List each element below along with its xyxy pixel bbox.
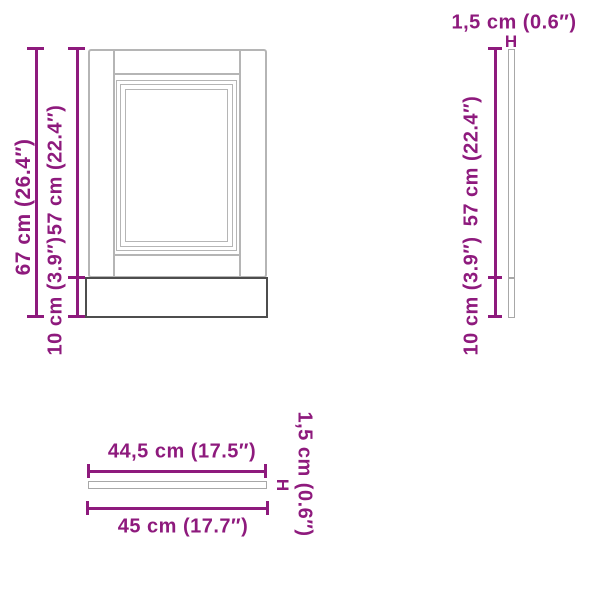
plinth-outline bbox=[85, 277, 268, 318]
thickness-marker: H bbox=[272, 479, 292, 491]
dim-tick bbox=[488, 47, 502, 50]
dim-tick bbox=[264, 464, 267, 478]
dim-tick bbox=[68, 315, 85, 318]
panel-left-stile-line bbox=[113, 51, 115, 277]
dim-label-side-plinth-height: 10 cm (3.9″) bbox=[461, 237, 484, 356]
top-panel-outline bbox=[88, 481, 267, 489]
panel-center-frame-inner bbox=[125, 89, 228, 242]
dim-line-inner-width bbox=[88, 470, 266, 473]
dim-tick bbox=[266, 501, 269, 515]
dim-line-outer-width bbox=[87, 507, 268, 510]
panel-bottom-rail-line bbox=[114, 254, 240, 256]
dim-label-door-height: 57 cm (22.4″) bbox=[45, 105, 68, 236]
dim-tick bbox=[27, 47, 44, 50]
dim-tick bbox=[27, 315, 44, 318]
dim-label-top-thickness: 1,5 cm (0.6″) bbox=[293, 411, 316, 536]
product-dimension-diagram: 67 cm (26.4″) 57 cm (22.4″) 10 cm (3.9″)… bbox=[0, 0, 600, 600]
dim-tick bbox=[86, 501, 89, 515]
dim-label-side-door-height: 57 cm (22.4″) bbox=[461, 96, 484, 227]
dim-label-total-height: 67 cm (26.4″) bbox=[12, 139, 36, 276]
panel-right-stile-line bbox=[239, 51, 241, 277]
side-panel-outline bbox=[508, 49, 515, 318]
dim-tick bbox=[488, 315, 502, 318]
dim-label-inner-width: 44,5 cm (17.5″) bbox=[108, 441, 256, 464]
side-panel-joint-line bbox=[509, 277, 514, 279]
dim-tick bbox=[488, 276, 502, 279]
dim-tick bbox=[68, 47, 85, 50]
dim-tick bbox=[68, 276, 85, 279]
panel-top-rail-line bbox=[114, 73, 240, 75]
dim-label-plinth-height: 10 cm (3.9″) bbox=[45, 237, 68, 356]
dim-tick bbox=[87, 464, 90, 478]
dim-label-outer-width: 45 cm (17.7″) bbox=[118, 516, 249, 539]
